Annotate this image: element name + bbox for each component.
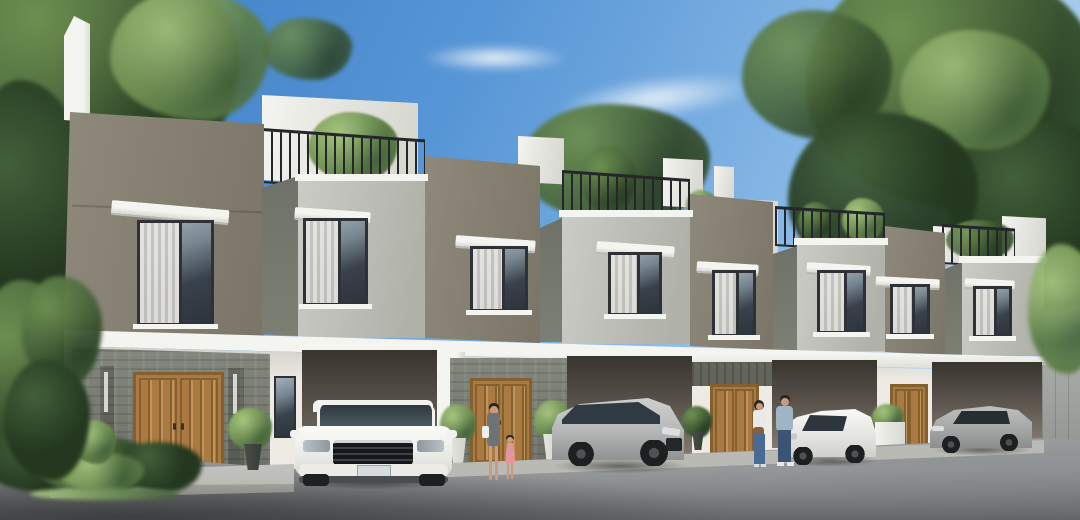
wall-light (104, 372, 108, 412)
window-mullion (338, 221, 341, 303)
person-shoe (754, 464, 759, 467)
person-leg (511, 463, 513, 479)
window (608, 252, 662, 316)
window-mullion (994, 289, 997, 335)
cloud (420, 44, 570, 72)
woman-white-top (748, 401, 770, 470)
window (712, 270, 756, 337)
tower-side-unit1 (262, 176, 298, 336)
person-shoe (761, 464, 766, 467)
person-leg (495, 446, 498, 480)
car-wheel (640, 440, 668, 466)
person-head (756, 403, 763, 410)
window (470, 246, 528, 312)
curtain (715, 273, 736, 334)
tower-side-unit3 (773, 246, 797, 350)
curtain (820, 273, 844, 331)
car-wheel (568, 442, 594, 466)
foreground-leaves-left (4, 360, 90, 480)
car-grille (666, 438, 682, 451)
woman-with-bag (483, 404, 504, 482)
person-head (781, 398, 789, 406)
person-jeans (778, 430, 791, 462)
car-grille (333, 440, 413, 465)
grey-crossover (930, 402, 1032, 455)
tower-fascia (794, 238, 888, 245)
grass-strip (30, 488, 180, 500)
curtain (473, 249, 502, 309)
car-wheel (845, 445, 865, 463)
curtain (306, 221, 339, 303)
window-sill (708, 335, 760, 340)
tower-fascia (559, 210, 693, 217)
potted-plant-left (228, 408, 272, 450)
tower-fascia (959, 256, 1047, 263)
window-sill (886, 334, 934, 339)
door-handle (181, 423, 184, 430)
car-mirror (290, 430, 301, 438)
window-sill (813, 332, 870, 337)
tower-side-unit4 (945, 262, 962, 355)
person-dress (505, 443, 515, 463)
person-shoe (777, 462, 784, 466)
window-sill (466, 310, 532, 315)
child-girl (502, 436, 517, 480)
wall-light (233, 374, 237, 414)
stone-accent-unit3 (692, 362, 778, 386)
window-mullion (844, 273, 847, 331)
window (890, 284, 930, 336)
window-mullion (179, 223, 182, 323)
car-wheel (942, 436, 960, 453)
person-leg (507, 463, 509, 479)
car-wheel (303, 474, 329, 486)
tower-fascia (295, 174, 428, 181)
carport-slit-window (274, 376, 296, 438)
shoulder-bag (482, 426, 489, 438)
planter-box (875, 422, 905, 446)
white-suv-front (295, 400, 452, 487)
door-leaf (909, 389, 923, 447)
person-shoe (787, 462, 794, 466)
car-wheel (1000, 434, 1018, 451)
parapet-fin (62, 16, 92, 122)
person-leg (489, 446, 492, 480)
car-headlight (932, 426, 944, 431)
person-jeans (754, 434, 765, 464)
window-mullion (637, 255, 640, 313)
window-sill (299, 304, 372, 309)
window (137, 220, 214, 326)
curtain (976, 289, 994, 335)
car-headlight (303, 440, 330, 452)
person-head (507, 437, 513, 443)
window (303, 218, 368, 306)
curtain (893, 287, 912, 333)
person-shirt (776, 406, 793, 431)
window-mullion (912, 287, 915, 333)
window (973, 286, 1012, 338)
window-sill (133, 324, 218, 329)
window-sill (604, 314, 666, 319)
door-handle (173, 423, 176, 430)
curtain (611, 255, 638, 313)
tower-side-unit2 (540, 218, 562, 342)
man-blue-shirt (771, 396, 799, 470)
car-mirror (446, 430, 457, 438)
car-wheel (419, 474, 445, 486)
window-mullion (502, 249, 505, 309)
tree-canopy (262, 18, 352, 80)
townhouse-render-scene (0, 0, 1080, 520)
window-sill (969, 336, 1016, 341)
door-leaf (715, 389, 734, 455)
window (817, 270, 866, 334)
curtain (140, 223, 180, 323)
window-mullion (736, 273, 739, 334)
silver-suv (552, 396, 684, 468)
car-headlight (417, 440, 444, 452)
